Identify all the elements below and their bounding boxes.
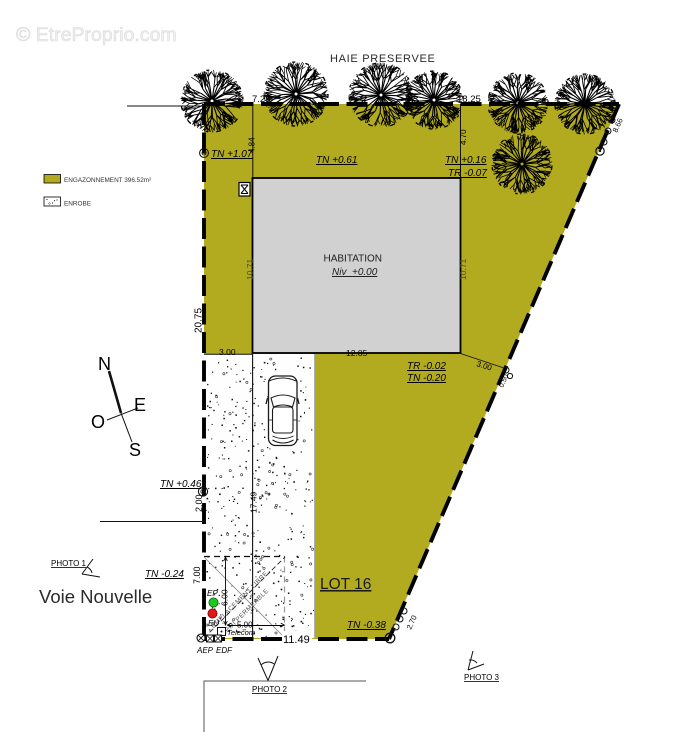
svg-text:17.49: 17.49 (249, 491, 259, 513)
svg-text:LOT 16: LOT 16 (320, 576, 371, 593)
svg-text:PHOTO 3: PHOTO 3 (464, 673, 500, 682)
svg-text:© EtreProprio.com: © EtreProprio.com (16, 24, 177, 46)
svg-text:TN +0.61: TN +0.61 (316, 155, 357, 166)
svg-text:TN +0.16: TN +0.16 (445, 155, 487, 166)
svg-text:TN -0.24: TN -0.24 (145, 569, 184, 580)
svg-text:EU: EU (208, 619, 219, 628)
svg-text:10.71: 10.71 (458, 258, 468, 280)
svg-text:20.75: 20.75 (194, 308, 205, 333)
svg-text:2.70: 2.70 (405, 614, 419, 631)
svg-text:Voie Nouvelle: Voie Nouvelle (39, 586, 152, 607)
svg-text:TN +1.07: TN +1.07 (211, 149, 253, 160)
svg-text:AEP: AEP (196, 646, 214, 655)
svg-text:11.49: 11.49 (283, 634, 310, 646)
svg-text:18.25: 18.25 (457, 94, 481, 105)
svg-text:O: O (91, 412, 105, 432)
svg-text:TN -0.20: TN -0.20 (407, 373, 446, 384)
svg-text:2.00: 2.00 (194, 494, 204, 512)
svg-text:TR -0.07: TR -0.07 (448, 168, 487, 179)
svg-text:EDF: EDF (216, 646, 233, 655)
svg-text:ENROBE: ENROBE (64, 201, 91, 208)
svg-text:N: N (98, 354, 111, 374)
svg-text:PHOTO 1: PHOTO 1 (51, 559, 87, 568)
svg-text:HABITATION: HABITATION (324, 254, 383, 265)
svg-text:6.00: 6.00 (220, 589, 230, 606)
svg-text:TR -0.02: TR -0.02 (407, 361, 446, 372)
svg-text:Telecom: Telecom (227, 628, 255, 637)
svg-text:E: E (134, 395, 146, 415)
svg-text:7.00: 7.00 (192, 566, 202, 584)
svg-text:3.00: 3.00 (219, 347, 236, 357)
svg-text:PHOTO 2: PHOTO 2 (252, 685, 288, 694)
svg-text:S: S (129, 440, 141, 460)
svg-text:ENGAZONNEMENT 396.52m²: ENGAZONNEMENT 396.52m² (64, 177, 151, 184)
svg-text:12.85: 12.85 (346, 348, 368, 358)
svg-text:TN -0.38: TN -0.38 (347, 620, 386, 631)
svg-text:Niv +0.00: Niv +0.00 (332, 267, 378, 278)
svg-text:4.70: 4.70 (459, 129, 468, 145)
svg-text:TN +0.46: TN +0.46 (160, 479, 202, 490)
svg-text:7.25: 7.25 (252, 94, 271, 105)
svg-text:10.71: 10.71 (245, 258, 255, 280)
svg-text:EP: EP (207, 589, 218, 598)
